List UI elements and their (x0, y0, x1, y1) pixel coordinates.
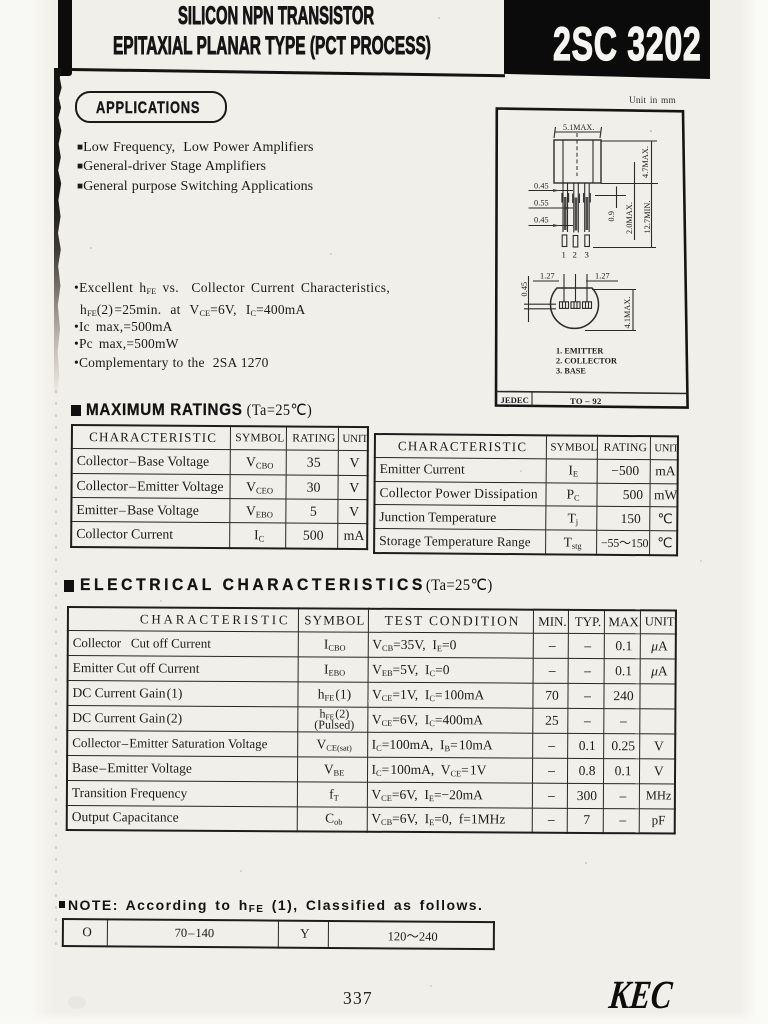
svg-text:1.27: 1.27 (595, 272, 610, 281)
svg-text:1: 1 (562, 250, 567, 260)
svg-text:TO – 92: TO – 92 (570, 396, 602, 406)
svg-text:4.1MAX.: 4.1MAX. (623, 296, 632, 328)
svg-text:JEDEC: JEDEC (501, 395, 529, 405)
svg-text:0.55: 0.55 (534, 199, 549, 208)
svg-text:0.45: 0.45 (520, 282, 529, 297)
svg-text:3: 3 (585, 250, 590, 260)
svg-text:1.27: 1.27 (540, 272, 555, 281)
svg-text:3. BASE: 3. BASE (556, 367, 586, 376)
svg-text:0.45: 0.45 (534, 182, 549, 191)
svg-text:2.0MAX.: 2.0MAX. (625, 202, 634, 234)
svg-text:2. COLLECTOR: 2. COLLECTOR (556, 357, 617, 366)
svg-text:12.7MIN.: 12.7MIN. (643, 200, 652, 233)
svg-text:2: 2 (573, 250, 578, 260)
svg-text:0.45: 0.45 (534, 216, 549, 225)
svg-text:5.1MAX.: 5.1MAX. (563, 123, 594, 132)
svg-text:4.7MAX.: 4.7MAX. (641, 146, 650, 178)
svg-text:0.9: 0.9 (607, 211, 616, 222)
svg-text:1. EMITTER: 1. EMITTER (556, 347, 603, 356)
